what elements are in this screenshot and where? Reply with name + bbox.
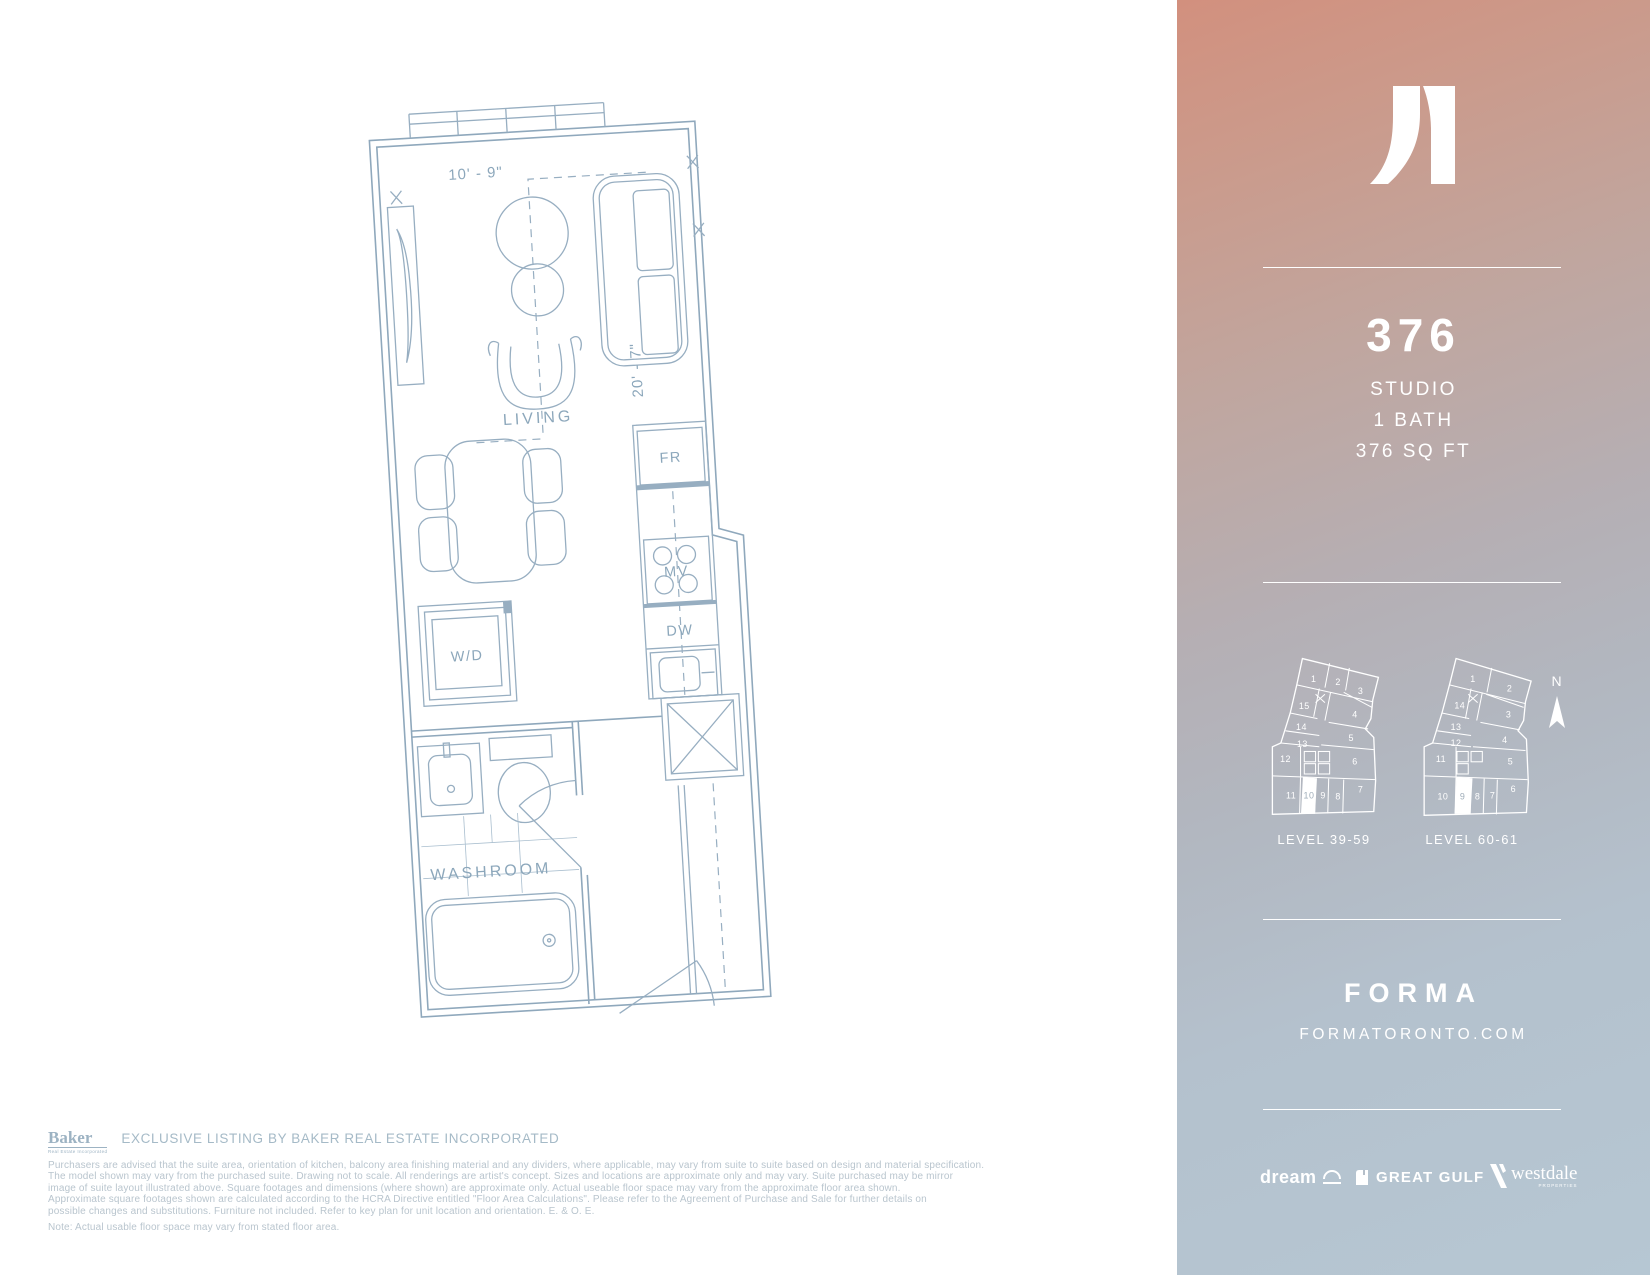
- dining-table: [413, 436, 567, 586]
- westdale-subtext: PROPERTIES: [1539, 1183, 1578, 1188]
- keyplan-unit-number: 14: [1296, 722, 1307, 732]
- suite-type: STUDIO: [1177, 379, 1650, 401]
- divider: [1263, 267, 1561, 268]
- keyplan-unit-number: 8: [1335, 791, 1340, 801]
- great-gulf-logo: GREAT GULF: [1355, 1169, 1484, 1186]
- dimension-depth-label: 20' - 7": [627, 342, 647, 397]
- forma-logo-icon: [1368, 86, 1456, 184]
- suite-number: 376: [1177, 308, 1650, 362]
- baker-wordmark: Baker: [48, 1129, 107, 1148]
- keyplan-level-60-61: 1214313121145109876: [1411, 634, 1533, 822]
- great-gulf-icon: [1355, 1169, 1369, 1186]
- keyplan-unit-number: 6: [1352, 757, 1357, 767]
- keyplan-unit-number: 3: [1358, 686, 1363, 696]
- baker-logo: Baker Real Estate Incorporated: [48, 1129, 107, 1154]
- north-arrow-icon: N: [1541, 672, 1573, 734]
- keyplan-unit-number: 1: [1311, 674, 1316, 684]
- level-label-left: LEVEL 39-59: [1263, 832, 1385, 847]
- keyplan-unit-number: 5: [1348, 733, 1353, 743]
- window-marker-icon: [390, 191, 402, 205]
- westdale-wordmark: westdale: [1511, 1164, 1577, 1183]
- coffee-table: [510, 262, 565, 317]
- keyplan-unit-number: 12: [1280, 754, 1291, 764]
- entry-area: [601, 694, 757, 1014]
- brand-url: FORMATORONTO.COM: [1177, 1026, 1650, 1044]
- svg-text:N: N: [1551, 673, 1562, 689]
- dimension-width-label: 10' - 9": [448, 164, 503, 184]
- keyplan-unit-number: 2: [1507, 683, 1512, 693]
- dream-arch-icon: [1321, 1168, 1343, 1185]
- divider: [1263, 1109, 1561, 1110]
- exclusive-listing-text: EXCLUSIVE LISTING BY BAKER REAL ESTATE I…: [121, 1131, 559, 1146]
- disclaimer-line: image of suite layout illustrated above.…: [48, 1183, 1158, 1194]
- disclaimer-line: possible changes and substitutions. Furn…: [48, 1206, 1158, 1217]
- living-label: LIVING: [502, 408, 573, 429]
- disclaimer-line: Purchasers are advised that the suite ar…: [48, 1160, 1158, 1171]
- keyplan-unit-number: 5: [1508, 757, 1513, 767]
- keyplan-unit-number: 9: [1460, 791, 1465, 801]
- divider: [1263, 582, 1561, 583]
- keyplan-unit-number: 6: [1511, 784, 1516, 794]
- keyplan-unit-number: 7: [1358, 785, 1363, 795]
- keyplan-unit-number: 13: [1451, 722, 1462, 732]
- disclaimer-line: The model shown may vary from the purcha…: [48, 1171, 1158, 1182]
- toilet: [497, 761, 552, 824]
- dream-wordmark: dream: [1260, 1169, 1317, 1185]
- bathtub: [425, 892, 580, 997]
- keyplan-unit-number: 8: [1475, 791, 1480, 801]
- keyplan-unit-number: 11: [1286, 790, 1296, 800]
- brand-wordmark: FORMA: [1177, 978, 1650, 1009]
- disclaimer-line: Approximate square footages shown are ca…: [48, 1194, 1158, 1205]
- great-gulf-wordmark: GREAT GULF: [1376, 1169, 1484, 1186]
- keyplan-unit-number: 11: [1436, 754, 1446, 764]
- microwave-label: MV: [664, 563, 690, 580]
- baker-subtext: Real Estate Incorporated: [48, 1149, 107, 1154]
- dishwasher-label: DW: [666, 622, 694, 640]
- keyplan-unit-number: 3: [1506, 710, 1511, 720]
- sofa: [592, 172, 689, 367]
- dream-logo: dream: [1260, 1168, 1343, 1185]
- washer-dryer-label: W/D: [450, 648, 484, 666]
- keyplan-unit-number: 13: [1297, 739, 1308, 749]
- level-label-right: LEVEL 60-61: [1411, 832, 1533, 847]
- partner-logos: dream GREAT GULF westdale: [1177, 1164, 1650, 1200]
- keyplan-unit-number: 10: [1437, 791, 1448, 801]
- washroom-label: WASHROOM: [430, 860, 552, 884]
- media-console: [387, 206, 424, 385]
- unit-floorplan-drawing: 10' - 9" 20' - 7" LIVING FR MV DW W/D WA…: [320, 70, 800, 1030]
- disclaimer-paragraph: Purchasers are advised that the suite ar…: [48, 1160, 1158, 1217]
- divider: [1263, 919, 1561, 920]
- armchair: [488, 336, 585, 411]
- keyplan-level-39-59: 123154141351261110987: [1263, 634, 1385, 822]
- keyplan-unit-number: 1: [1470, 674, 1475, 684]
- door-swing: [518, 780, 577, 805]
- keyplan-unit-number: 12: [1451, 738, 1462, 748]
- keyplan-unit-number: 4: [1352, 710, 1357, 720]
- floorplan-sheet: 10' - 9" 20' - 7" LIVING FR MV DW W/D WA…: [0, 0, 1650, 1275]
- keyplan-unit-number: 14: [1454, 700, 1465, 710]
- suite-bath: 1 BATH: [1177, 410, 1650, 432]
- note-text: Note: Actual usable floor space may vary…: [48, 1222, 339, 1233]
- info-panel: 376 STUDIO 1 BATH 376 SQ FT 123154141351…: [1177, 0, 1650, 1275]
- westdale-icon: [1490, 1164, 1508, 1188]
- toilet-tank: [489, 735, 552, 761]
- keyplan-unit-number: 4: [1502, 735, 1507, 745]
- fridge-label: FR: [659, 450, 682, 467]
- keyplan-unit-number: 10: [1304, 790, 1315, 800]
- listing-credit-row: Baker Real Estate Incorporated EXCLUSIVE…: [48, 1129, 559, 1154]
- suite-area: 376 SQ FT: [1177, 441, 1650, 463]
- keyplan-unit-number: 15: [1299, 701, 1310, 711]
- keyplan-unit-number: 9: [1320, 790, 1325, 800]
- keyplan-unit-number: 2: [1335, 677, 1340, 687]
- westdale-logo: westdale PROPERTIES: [1490, 1164, 1577, 1188]
- keyplan-unit-number: 7: [1490, 790, 1495, 800]
